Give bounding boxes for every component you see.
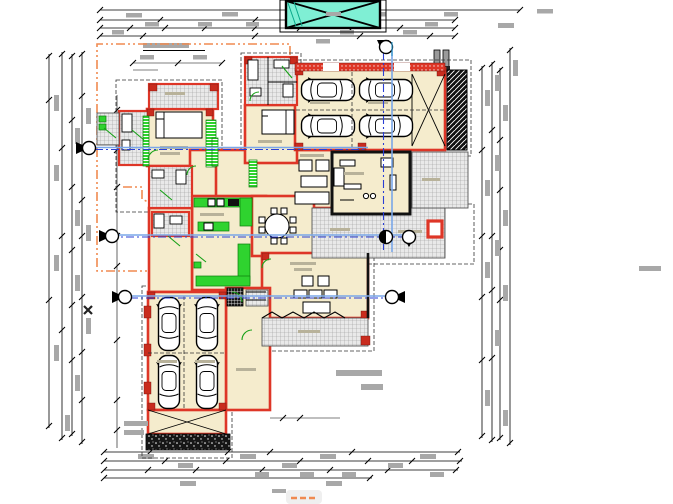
car-icon xyxy=(360,114,413,138)
survey-cross-mark xyxy=(84,306,92,314)
section-marker-B-left xyxy=(99,230,119,243)
floor-plan-canvas xyxy=(0,0,673,504)
pool-skylight xyxy=(280,0,386,32)
car-icon xyxy=(157,298,181,351)
bed-topcenter xyxy=(262,110,294,134)
bottom-dimension-text-blobs xyxy=(138,454,444,493)
car-icon xyxy=(157,356,181,409)
right-dimension-lines xyxy=(479,47,518,446)
section-marker-A-left xyxy=(76,142,96,155)
patio-column xyxy=(428,221,442,237)
right-dimension-text-blobs xyxy=(485,60,518,426)
car-icon xyxy=(360,78,413,102)
porch-topleft xyxy=(149,84,218,109)
section-marker-B-mid xyxy=(380,231,393,244)
bed-topleft xyxy=(156,112,202,138)
driveway-apron xyxy=(146,434,230,450)
left-dimension-lines xyxy=(46,51,91,445)
car-icon xyxy=(302,78,355,102)
hatched-strip-east xyxy=(447,70,467,150)
floor-plan-svg xyxy=(0,0,673,504)
bottom-dimension-lines xyxy=(101,449,463,493)
section-marker-D-top xyxy=(377,40,393,56)
section-marker-C-left xyxy=(112,291,132,304)
section-marker-C-right xyxy=(386,291,406,304)
garage-upper-top-wall xyxy=(295,63,445,71)
car-icon xyxy=(302,114,355,138)
car-icon xyxy=(195,356,219,409)
car-icon xyxy=(195,298,219,351)
legend-chip-orange-dash xyxy=(286,490,322,504)
